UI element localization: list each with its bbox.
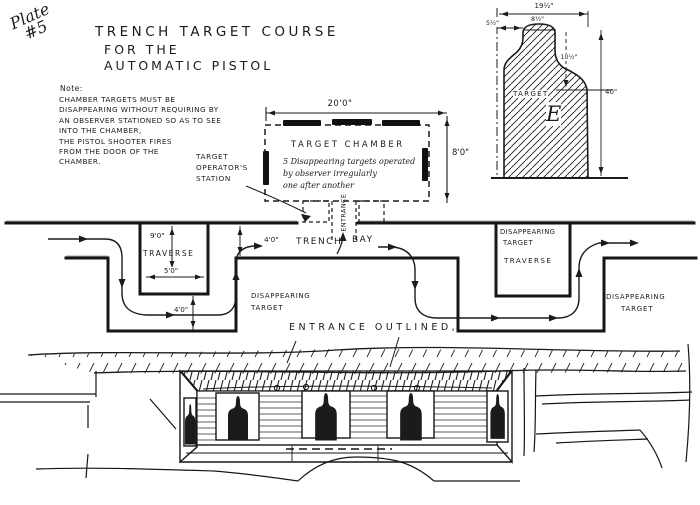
trench-course-drawing [0,0,700,505]
chamber-entrance-label: ENTRANCE [340,189,347,237]
chamber-desc-line2: by observer irregularly [283,169,377,178]
operator-station-line: OPERATOR'S [196,162,248,173]
right-traverse-target-line1: DISAPPEARING [500,229,555,237]
note-line: DISAPPEARING WITHOUT REQUIRING BY [59,105,221,115]
left-traverse-offset-dim: 4'0" [174,306,188,314]
disappearing-target-mid-line2: TARGET [251,304,283,312]
disappearing-target-right-line2: TARGET [621,305,653,313]
right-traverse-label: TRAVERSE [504,257,552,265]
target-e-silhouette [504,24,588,178]
target-e-letter: E [546,102,561,126]
chamber-title: TARGET CHAMBER [291,141,405,151]
page-title-line1: TRENCH TARGET COURSE [95,25,339,41]
target-e-word: TARGET [513,90,548,98]
right-traverse-target-line2: TARGET [503,240,533,248]
disappearing-target-right-line1: DISAPPEARING [606,293,665,301]
elevation-caption: ENTRANCE OUTLINED, [289,323,458,334]
chamber-desc-line1: 5 Disappearing targets operated [283,157,415,166]
note-line: CHAMBER TARGETS MUST BE [59,95,221,105]
left-traverse-width-dim: 5'0" [164,267,178,275]
target-e-head-width-dim: 8½" [531,16,544,23]
flow-path [48,239,636,318]
target-e-width-dim: 19½" [524,2,564,10]
operator-station-label: TARGET OPERATOR'S STATION [196,151,248,184]
note-line: THE PISTOL SHOOTER FIRES [59,137,221,147]
left-traverse-label: TRAVERSE [143,250,195,259]
page-title-line2: FOR THE [104,43,180,57]
chamber-width-dim: 20'0" [316,100,364,110]
operator-station-line: TARGET [196,151,248,162]
scanned-plate: Plate #5 TRENCH TARGET COURSE FOR THE AU… [0,0,700,505]
note-line: AN OBSERVER STATIONED SO AS TO SEE [59,116,221,126]
target-e-height-dim: 40" [605,88,617,96]
elevation-view [0,337,692,481]
target-e-head-height-dim: 10½" [558,54,580,61]
bay-label: BAY [352,235,374,245]
target-e-left-offset-dim: 5½" [486,20,499,27]
note-line: INTO THE CHAMBER, [59,126,221,136]
operator-station-line: STATION [196,173,248,184]
page-title-line3: AUTOMATIC PISTOL [104,59,273,73]
trench-label: TRENCH [296,237,342,247]
left-traverse-depth-dim: 9'0" [150,232,165,240]
bay-width-dim: 4'0" [264,236,279,244]
chamber-height-dim: 8'0" [452,149,469,159]
chamber-height-dimension-line [445,116,450,203]
note-heading: Note: [60,85,83,94]
disappearing-target-mid-line1: DISAPPEARING [251,292,310,300]
plan-wall-inner-lines [6,221,694,256]
